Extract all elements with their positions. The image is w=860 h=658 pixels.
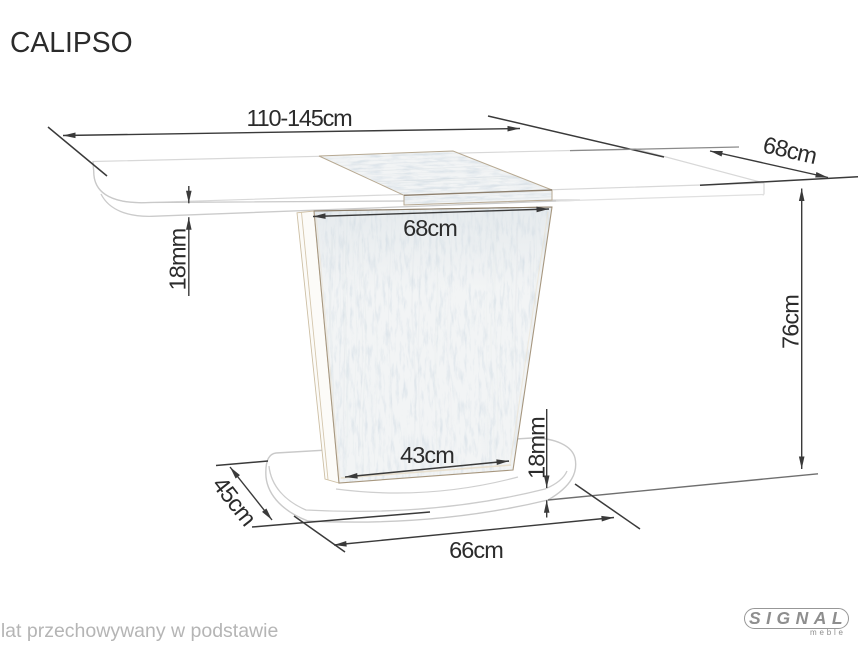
svg-text:76cm: 76cm: [778, 295, 804, 349]
svg-text:66cm: 66cm: [449, 537, 503, 563]
svg-text:68cm: 68cm: [403, 215, 457, 241]
svg-text:110-145cm: 110-145cm: [246, 105, 352, 131]
svg-text:43cm: 43cm: [400, 442, 454, 468]
svg-text:18mm: 18mm: [165, 228, 191, 290]
svg-text:18mm: 18mm: [524, 417, 550, 479]
